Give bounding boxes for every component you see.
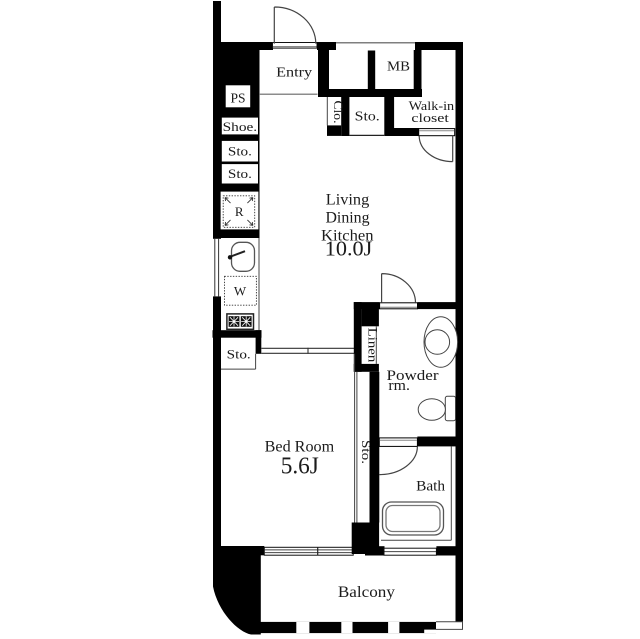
svg-text:Shoe.: Shoe.	[223, 119, 258, 134]
svg-text:MB: MB	[387, 58, 410, 73]
svg-text:Linen: Linen	[365, 328, 380, 363]
svg-text:Dining: Dining	[326, 209, 370, 226]
svg-text:R: R	[235, 204, 244, 219]
svg-text:W: W	[234, 283, 247, 298]
svg-text:Living: Living	[326, 191, 370, 208]
svg-text:Sto.: Sto.	[228, 166, 252, 181]
svg-text:Sto.: Sto.	[227, 347, 251, 362]
svg-text:Sto.: Sto.	[228, 144, 252, 159]
svg-text:Balcony: Balcony	[338, 584, 395, 601]
svg-text:Sto.: Sto.	[355, 109, 380, 124]
svg-text:5.6J: 5.6J	[281, 452, 320, 479]
svg-text:closet: closet	[411, 111, 449, 125]
svg-text:Bath: Bath	[416, 478, 446, 494]
svg-text:PS: PS	[230, 91, 245, 106]
svg-text:rm.: rm.	[388, 378, 410, 394]
svg-text:Clo.: Clo.	[331, 101, 345, 124]
svg-text:Entry: Entry	[276, 66, 312, 81]
svg-text:10.0J: 10.0J	[325, 236, 373, 260]
